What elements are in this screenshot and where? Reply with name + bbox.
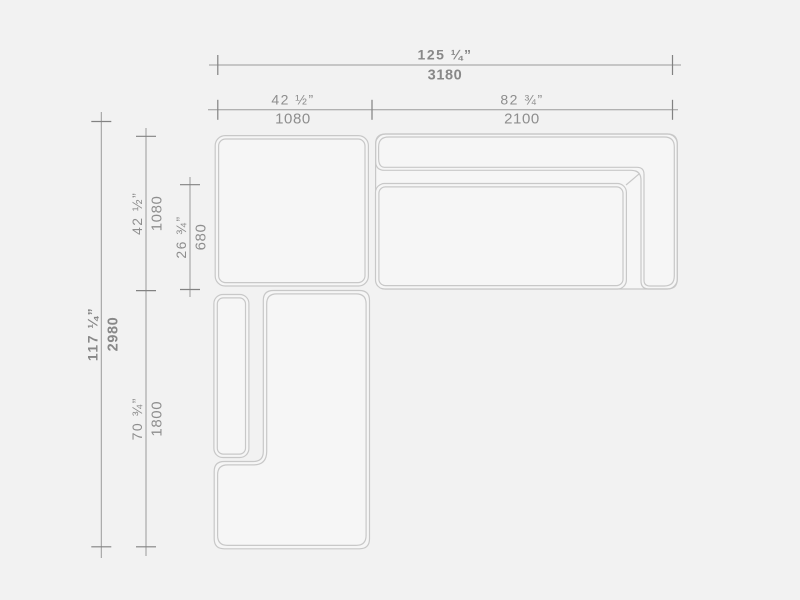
svg-text:26 ¾”: 26 ¾” (173, 215, 189, 258)
svg-text:2980: 2980 (106, 317, 122, 352)
svg-text:42 ½”: 42 ½” (129, 192, 145, 235)
svg-text:3180: 3180 (428, 67, 463, 83)
svg-text:1080: 1080 (149, 196, 166, 232)
svg-text:1800: 1800 (149, 401, 166, 437)
svg-text:2100: 2100 (504, 111, 540, 128)
svg-text:680: 680 (193, 224, 210, 251)
svg-text:70 ¾”: 70 ¾” (129, 397, 145, 440)
svg-text:117 ¼”: 117 ¼” (85, 307, 101, 361)
svg-text:1080: 1080 (275, 111, 311, 128)
svg-text:82 ¾”: 82 ¾” (500, 92, 543, 108)
svg-text:125 ¼”: 125 ¼” (418, 47, 473, 63)
svg-text:42 ½”: 42 ½” (271, 92, 314, 108)
